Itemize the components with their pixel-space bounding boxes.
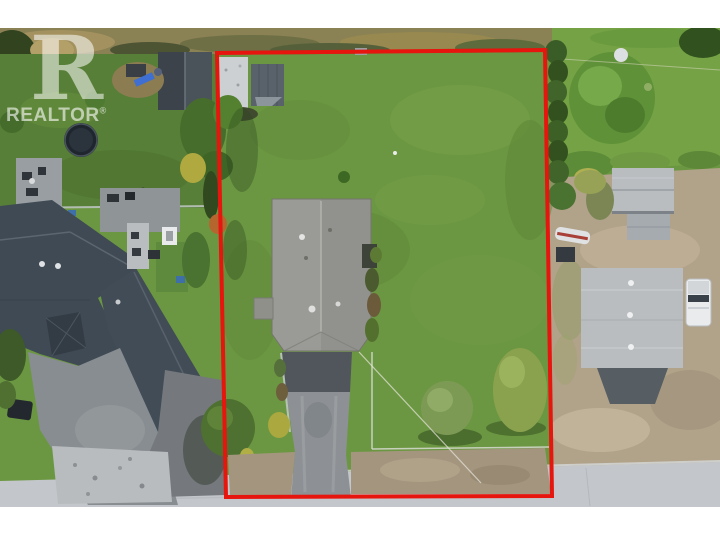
- sprinkler-dot: [393, 151, 397, 155]
- roof-vent: [299, 234, 305, 240]
- subject-property: [180, 48, 555, 498]
- gravel-slope: [52, 446, 172, 504]
- yellow-bush: [268, 412, 290, 438]
- trampoline: [64, 123, 98, 157]
- playground: [112, 62, 164, 98]
- windshield: [688, 295, 709, 302]
- blue-pool: [176, 276, 185, 283]
- yellow-tree: [180, 153, 206, 183]
- garage-wall: [127, 223, 149, 269]
- roof-vent: [55, 263, 61, 269]
- utility-trailer: [556, 247, 575, 262]
- porch-bumpout: [254, 298, 273, 319]
- right-neighbor-farmyard: [548, 168, 720, 468]
- right-neighbor-yard: [548, 26, 720, 188]
- shrub-ball: [338, 171, 350, 183]
- subject-house: [254, 199, 371, 351]
- tree-shadow: [226, 108, 258, 192]
- gray-shed: [251, 64, 284, 106]
- orange-shrub: [209, 214, 227, 234]
- dirt-shoulder: [228, 448, 551, 495]
- pickup-truck: [686, 279, 711, 326]
- satellite-dish: [614, 48, 628, 62]
- aerial-photo-canvas: [0, 0, 720, 540]
- patio: [16, 158, 62, 208]
- roof-vent: [39, 261, 45, 267]
- aerial-listing-photo: R REALTOR®: [0, 0, 720, 540]
- roof-vent: [309, 306, 316, 313]
